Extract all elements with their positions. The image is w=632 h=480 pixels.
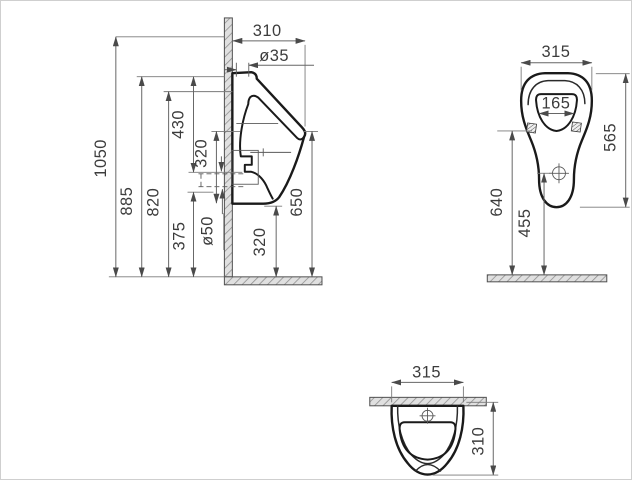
urinal-dimension-drawing: 310 ø35 1050 885 820 430 320 375 — [1, 1, 631, 479]
dim-label-315-front: 315 — [542, 43, 571, 61]
dim-label-320-lower: 320 — [251, 228, 269, 257]
dim-label-165: 165 — [542, 95, 571, 113]
top-view: 315 310 — [370, 363, 498, 475]
dim-label-315-plan: 315 — [412, 363, 441, 381]
dim-label-310-plan: 310 — [469, 427, 487, 456]
technical-drawing-canvas: 310 ø35 1050 885 820 430 320 375 — [0, 0, 632, 480]
dim-label-455: 455 — [516, 209, 534, 238]
dim-label-dia50: ø50 — [198, 216, 216, 246]
dim-label-dia35: ø35 — [259, 47, 289, 65]
dim-label-375: 375 — [171, 222, 189, 251]
floor-section-side — [224, 277, 322, 285]
wall-section-plan — [370, 397, 487, 405]
dim-label-640: 640 — [488, 188, 506, 217]
dim-label-820: 820 — [145, 188, 163, 217]
dim-label-885: 885 — [118, 187, 136, 216]
dim-label-650: 650 — [288, 188, 306, 217]
floor-section-front — [487, 275, 607, 282]
side-view: 310 ø35 1050 885 820 430 320 375 — [92, 18, 322, 285]
dim-label-1050: 1050 — [92, 139, 110, 178]
dim-label-565: 565 — [602, 123, 620, 152]
fixing-hole-right — [571, 122, 581, 132]
dim-label-430: 430 — [170, 110, 188, 139]
front-view: 315 165 565 640 455 — [487, 43, 629, 282]
fixing-hole-left — [526, 123, 536, 133]
dim-label-320-upper: 320 — [192, 139, 210, 168]
dim-label-310-side: 310 — [253, 22, 282, 40]
